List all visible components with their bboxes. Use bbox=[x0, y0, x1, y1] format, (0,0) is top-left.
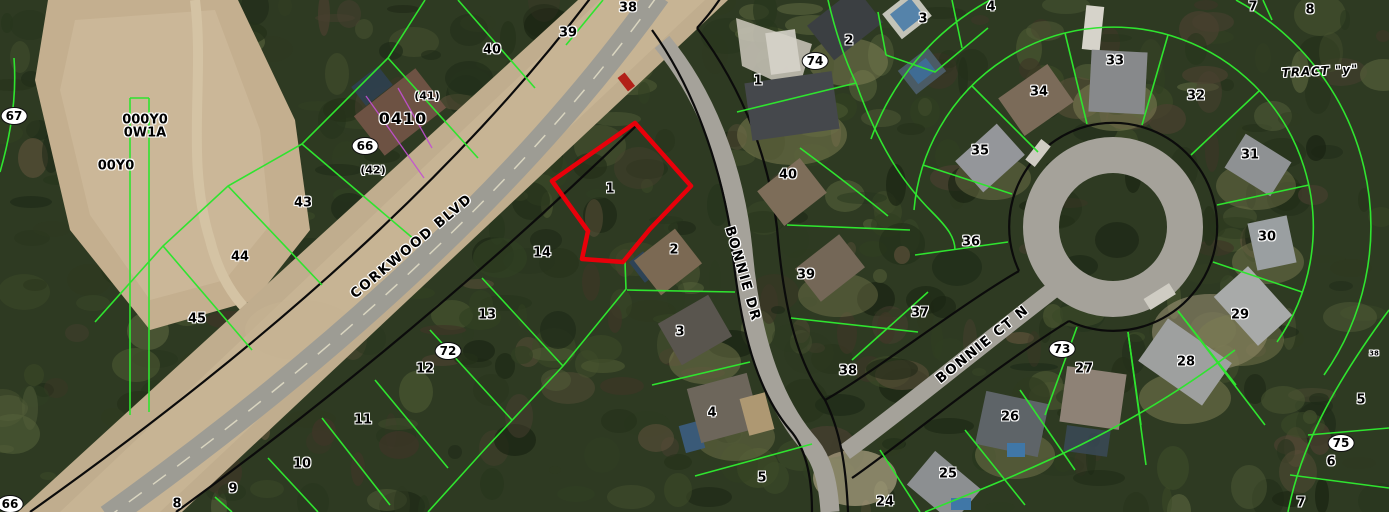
parcel-number-label: 3 bbox=[675, 326, 684, 339]
parcel-number-label: 4 bbox=[986, 1, 995, 14]
block-number-label: 66 bbox=[352, 137, 379, 155]
parcel-number-label: 32 bbox=[1187, 90, 1205, 103]
parcel-number-label: 2 bbox=[669, 244, 678, 257]
parcel-number-label: 39 bbox=[559, 27, 577, 40]
parcel-number-label: 9 bbox=[228, 483, 237, 496]
parcel-number-label: 29 bbox=[1231, 309, 1249, 322]
parcel-number-label: 40 bbox=[483, 44, 501, 57]
parcel-number-label: 1 bbox=[605, 183, 614, 196]
parcel-number-label: 31 bbox=[1241, 149, 1259, 162]
parcel-number-label: 00Y0 bbox=[98, 160, 135, 173]
parcel-number-label: 44 bbox=[231, 251, 249, 264]
parcel-number-label: 40 bbox=[779, 169, 797, 182]
block-number-label: 67 bbox=[1, 107, 28, 125]
parcel-number-label: 33 bbox=[1106, 55, 1124, 68]
parcel-number-label: 38 bbox=[1369, 351, 1379, 358]
parcel-number-label: 6 bbox=[1326, 456, 1335, 469]
parcel-number-label: 37 bbox=[911, 307, 929, 320]
parcel-number-label: 4 bbox=[707, 407, 716, 420]
parcel-number-label: 7 bbox=[1296, 497, 1305, 510]
parcel-number-label: 8 bbox=[172, 498, 181, 511]
road-label-bonnie-dr: BONNIE DR bbox=[722, 225, 762, 323]
road-label-bonnie-ct-n: BONNIE CT N bbox=[934, 304, 1032, 387]
parcel-number-label: (42) bbox=[360, 165, 385, 176]
parcel-number-label: 26 bbox=[1001, 411, 1019, 424]
parcel-number-label: TRACT "y" bbox=[1281, 63, 1358, 79]
parcel-number-label: 8 bbox=[1305, 4, 1314, 17]
road-label-corkwood-blvd: CORKWOOD BLVD bbox=[349, 192, 476, 301]
block-number-label: 75 bbox=[1328, 434, 1355, 452]
parcel-number-label: (41) bbox=[414, 91, 439, 102]
parcel-map-canvas[interactable]: 383940(41)041066(42)43444567000Y00W1A00Y… bbox=[0, 0, 1389, 512]
parcel-number-label: 34 bbox=[1030, 86, 1048, 99]
parcel-number-label: 3 bbox=[918, 13, 927, 26]
parcel-number-label: 7 bbox=[1248, 1, 1257, 14]
parcel-number-label: 43 bbox=[294, 197, 312, 210]
parcel-number-label: 38 bbox=[839, 365, 857, 378]
parcel-number-label: 38 bbox=[619, 2, 637, 15]
parcel-number-label: 10 bbox=[293, 458, 311, 471]
parcel-number-label: 2 bbox=[844, 35, 853, 48]
parcel-number-label: 30 bbox=[1258, 231, 1276, 244]
parcel-number-label: 45 bbox=[188, 313, 206, 326]
block-number-label: 74 bbox=[802, 52, 829, 70]
parcel-number-label: 0W1A bbox=[124, 127, 167, 140]
block-number-label: 66 bbox=[0, 495, 23, 512]
block-number-label: 73 bbox=[1049, 340, 1076, 358]
parcel-number-label: 36 bbox=[962, 236, 980, 249]
parcel-number-label: 5 bbox=[1356, 394, 1365, 407]
parcel-number-label: 11 bbox=[354, 414, 372, 427]
parcel-number-label: 12 bbox=[416, 363, 434, 376]
parcel-number-label: 1 bbox=[753, 75, 762, 88]
parcel-number-label: 25 bbox=[939, 468, 957, 481]
parcel-number-label: 0410 bbox=[379, 111, 428, 127]
parcel-number-label: 28 bbox=[1177, 356, 1195, 369]
parcel-number-label: 14 bbox=[533, 247, 551, 260]
parcel-number-label: 39 bbox=[797, 269, 815, 282]
parcel-number-label: 27 bbox=[1075, 363, 1093, 376]
parcel-number-label: 5 bbox=[757, 472, 766, 485]
block-number-label: 72 bbox=[435, 342, 462, 360]
parcel-number-label: 35 bbox=[971, 145, 989, 158]
parcel-number-label: 24 bbox=[876, 496, 894, 509]
parcel-number-label: 13 bbox=[478, 309, 496, 322]
map-labels-layer: 383940(41)041066(42)43444567000Y00W1A00Y… bbox=[0, 0, 1389, 512]
